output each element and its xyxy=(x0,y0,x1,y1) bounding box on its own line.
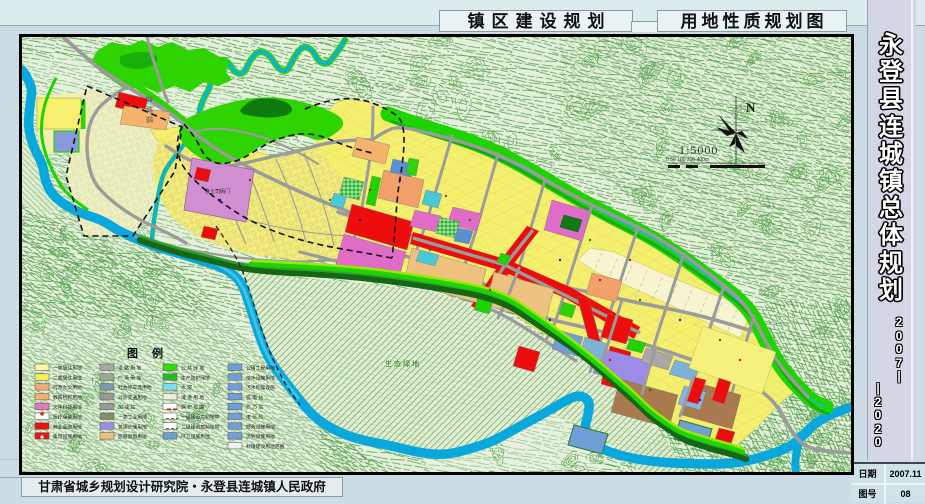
svg-text:N: N xyxy=(746,100,756,115)
svg-text:滩 涂 用 地: 滩 涂 用 地 xyxy=(181,394,204,401)
svg-text:集贸设施用地: 集贸设施用地 xyxy=(53,433,82,440)
svg-text:连城镇: 连城镇 xyxy=(145,96,154,126)
svg-text:社会停车场用地: 社会停车场用地 xyxy=(118,384,152,391)
svg-text:广 场 用 地: 广 场 用 地 xyxy=(118,374,141,381)
svg-text:图例: 图例 xyxy=(127,346,177,360)
svg-text:村镇建设用地范围: 村镇建设用地范围 xyxy=(246,443,285,450)
svg-text:鲁土司衙门: 鲁土司衙门 xyxy=(205,188,230,195)
svg-text:公用工程用地: 公用工程用地 xyxy=(246,365,275,372)
svg-text:加 油 站: 加 油 站 xyxy=(118,404,135,411)
svg-text:电 信 局: 电 信 局 xyxy=(246,414,263,421)
svg-text:文体科技用地: 文体科技用地 xyxy=(53,404,82,411)
svg-text:二类居住用地: 二类居住用地 xyxy=(53,374,82,381)
svg-text:给水设施用地: 给水设施用地 xyxy=(246,374,275,381)
svg-text:生产防护绿地: 生产防护绿地 xyxy=(181,374,210,381)
svg-text:行政办公用地: 行政办公用地 xyxy=(53,384,82,391)
svg-text:生态绿地: 生态绿地 xyxy=(385,359,421,368)
svg-text:旅游度假用地: 旅游度假用地 xyxy=(118,433,147,440)
svg-text:一级建设控制地带: 一级建设控制地带 xyxy=(181,414,220,421)
svg-text:热 力 站: 热 力 站 xyxy=(246,404,263,411)
svg-text:医疗保健用地: 医疗保健用地 xyxy=(53,414,82,421)
svg-text:1:5000: 1:5000 xyxy=(679,143,718,157)
svg-text:道 路 用 地: 道 路 用 地 xyxy=(118,365,141,372)
svg-text:教育机构用地: 教育机构用地 xyxy=(53,394,82,401)
svg-text:水 域: 水 域 xyxy=(181,384,192,391)
svg-text:一类居住用地: 一类居住用地 xyxy=(53,365,82,372)
svg-text:对外交通用地: 对外交通用地 xyxy=(118,394,147,401)
svg-text:二级建设控制地带: 二级建设控制地带 xyxy=(181,423,220,430)
svg-text:一类工业用地: 一类工业用地 xyxy=(118,414,147,421)
svg-text:变 电 站: 变 电 站 xyxy=(246,394,263,401)
svg-text:保 护 范 围: 保 护 范 围 xyxy=(181,404,204,411)
svg-text:消防设施用地: 消防设施用地 xyxy=(246,433,275,440)
svg-text:普通仓储用地: 普通仓储用地 xyxy=(118,423,147,430)
svg-text:污水处理设施: 污水处理设施 xyxy=(246,384,275,391)
svg-text:公 共 绿 地: 公 共 绿 地 xyxy=(181,365,204,372)
svg-text:0 50 100 200 400m: 0 50 100 200 400m xyxy=(666,157,709,163)
svg-text:商业金融用地: 商业金融用地 xyxy=(53,423,82,430)
svg-text:环卫设施用地: 环卫设施用地 xyxy=(181,433,210,440)
svg-text:邮政设施用地: 邮政设施用地 xyxy=(246,423,275,430)
